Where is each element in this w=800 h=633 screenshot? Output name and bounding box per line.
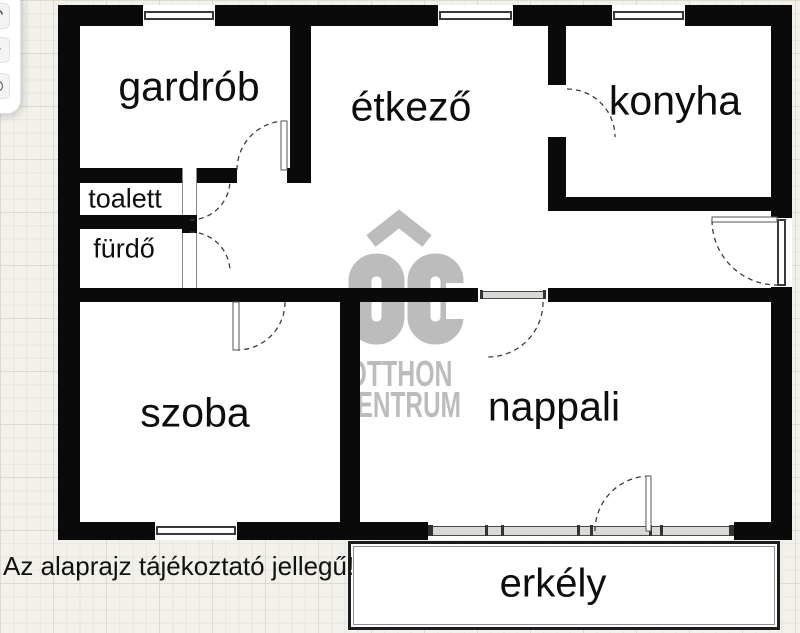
door-leaf-erkely-door <box>646 476 651 531</box>
room-label-szoba: szoba <box>140 390 249 437</box>
room-label-toalett: toalett <box>88 184 162 215</box>
door-leaf-gardrob <box>281 121 287 170</box>
door-arc-erkely-door <box>595 476 650 531</box>
minus-icon[interactable]: − <box>0 37 10 63</box>
door-arc-konyha <box>567 89 615 137</box>
room-label-etkezo: étkező <box>351 84 472 131</box>
room-label-erkely: erkély <box>500 562 607 607</box>
door-leaf-balcony-door <box>712 217 777 222</box>
door-arc-furdo <box>190 232 230 272</box>
room-label-gardrob: gardrób <box>118 64 259 111</box>
viewer-toolbar: ↶ − ◎ <box>0 0 21 114</box>
floorplan-viewer: OTTHON CENTRUM <box>0 0 800 633</box>
disclaimer-text: Az alaprajz tájékoztató jellegű! <box>3 551 354 582</box>
room-label-nappali: nappali <box>488 384 620 431</box>
door-arc-szoba <box>237 302 285 350</box>
target-icon[interactable]: ◎ <box>0 73 10 99</box>
door-arc-toalett <box>190 180 230 220</box>
undo-icon[interactable]: ↶ <box>0 3 10 29</box>
door-arc-balcony-door <box>712 220 777 285</box>
door-arc-nappali-hall <box>488 302 543 357</box>
room-label-furdo: fürdő <box>93 234 155 265</box>
door-arc-gardrob <box>237 121 286 170</box>
door-leaf-szoba <box>233 302 239 350</box>
room-label-konyha: konyha <box>609 78 741 125</box>
